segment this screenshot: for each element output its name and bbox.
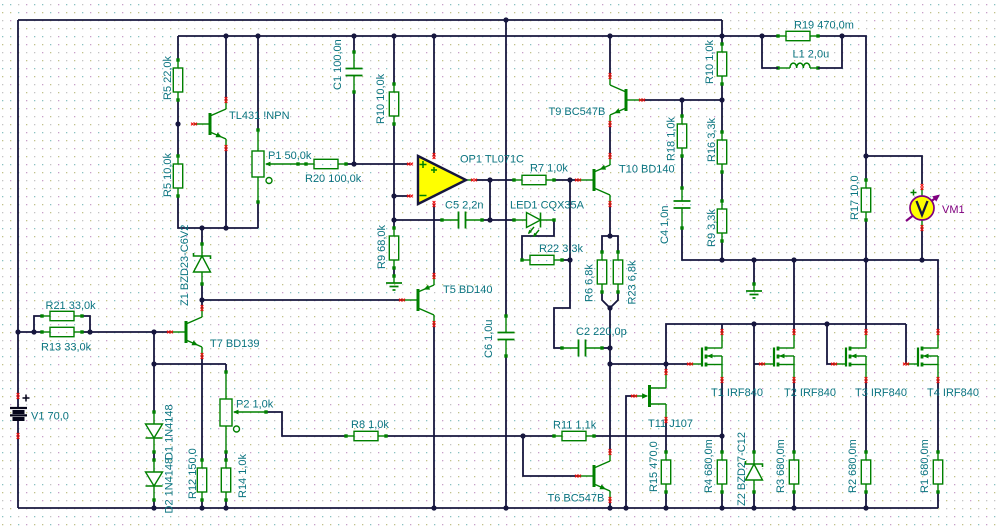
svg-text:T7 BD139: T7 BD139 (210, 338, 260, 350)
svg-text:VM1: VM1 (942, 204, 965, 216)
svg-text:C6 1,0u: C6 1,0u (483, 319, 495, 358)
svg-text:OP1 TL071C: OP1 TL071C (460, 153, 524, 165)
svg-text:R17 10,0: R17 10,0 (849, 175, 861, 220)
svg-text:R4 680,0m: R4 680,0m (703, 439, 715, 493)
svg-text:R12 150,0: R12 150,0 (187, 448, 199, 499)
svg-text:R6 6,8k: R6 6,8k (584, 264, 596, 302)
svg-text:R2 680,0m: R2 680,0m (847, 439, 859, 493)
svg-text:T2 IRF840: T2 IRF840 (784, 387, 836, 399)
svg-text:R23 6,8k: R23 6,8k (627, 260, 639, 305)
svg-text:C5 2,2n: C5 2,2n (445, 199, 484, 211)
svg-text:TL431 !NPN: TL431 !NPN (229, 110, 290, 122)
svg-text:R8 1,0k: R8 1,0k (351, 419, 389, 431)
svg-text:R21 33,0k: R21 33,0k (46, 300, 97, 312)
svg-text:R19 470,0m: R19 470,0m (794, 20, 854, 32)
svg-text:C1 100,0n: C1 100,0n (332, 39, 344, 90)
svg-text:T4 IRF840: T4 IRF840 (927, 387, 979, 399)
svg-text:T1 IRF840: T1 IRF840 (711, 387, 763, 399)
svg-text:R7 1,0k: R7 1,0k (530, 163, 568, 175)
svg-text:T11 J107: T11 J107 (648, 418, 693, 430)
svg-text:R18 1,0k: R18 1,0k (666, 116, 678, 161)
svg-text:R10 10,0k: R10 10,0k (375, 73, 387, 124)
svg-text:P2 1,0k: P2 1,0k (236, 399, 274, 411)
svg-text:LED1 CQX35A: LED1 CQX35A (510, 199, 585, 211)
svg-text:P1 50,0k: P1 50,0k (268, 150, 312, 162)
svg-text:D1 1N4148: D1 1N4148 (164, 404, 176, 460)
svg-text:L1 2,0u: L1 2,0u (793, 49, 830, 61)
svg-text:R3 680,0m: R3 680,0m (775, 439, 787, 493)
svg-text:T10 BD140: T10 BD140 (619, 164, 675, 176)
svg-text:R20 100,0k: R20 100,0k (305, 173, 362, 185)
svg-text:R13 33,0k: R13 33,0k (41, 342, 92, 354)
svg-text:D2 1N4148: D2 1N4148 (164, 458, 176, 514)
svg-text:R1 680,0m: R1 680,0m (919, 439, 931, 493)
svg-text:Z1 BZD23-C6V2: Z1 BZD23-C6V2 (179, 225, 191, 306)
svg-text:T9 BC547B: T9 BC547B (549, 106, 606, 118)
svg-text:R10 1,0k: R10 1,0k (704, 39, 716, 84)
svg-text:R14 1,0k: R14 1,0k (237, 453, 249, 498)
svg-text:T3 IRF840: T3 IRF840 (855, 387, 907, 399)
svg-text:R11 1,1k: R11 1,1k (553, 420, 597, 432)
svg-text:R5 10,0k: R5 10,0k (162, 152, 174, 197)
svg-text:R5 22,0k: R5 22,0k (162, 55, 174, 100)
svg-text:T5 BD140: T5 BD140 (443, 284, 493, 296)
svg-text:C2 220,0p: C2 220,0p (576, 326, 627, 338)
svg-text:R22 3,3k: R22 3,3k (539, 243, 584, 255)
svg-text:R9 68,0k: R9 68,0k (376, 224, 388, 269)
svg-text:R15 470,0: R15 470,0 (648, 441, 660, 492)
svg-text:R9 3,3k: R9 3,3k (706, 209, 718, 247)
svg-text:C4 1,0n: C4 1,0n (659, 205, 671, 244)
svg-text:R16 3,3k: R16 3,3k (706, 117, 718, 162)
svg-text:V1 70,0: V1 70,0 (31, 411, 69, 423)
svg-text:Z2 BZD27-C12: Z2 BZD27-C12 (736, 432, 748, 506)
svg-text:T6 BC547B: T6 BC547B (548, 493, 605, 505)
